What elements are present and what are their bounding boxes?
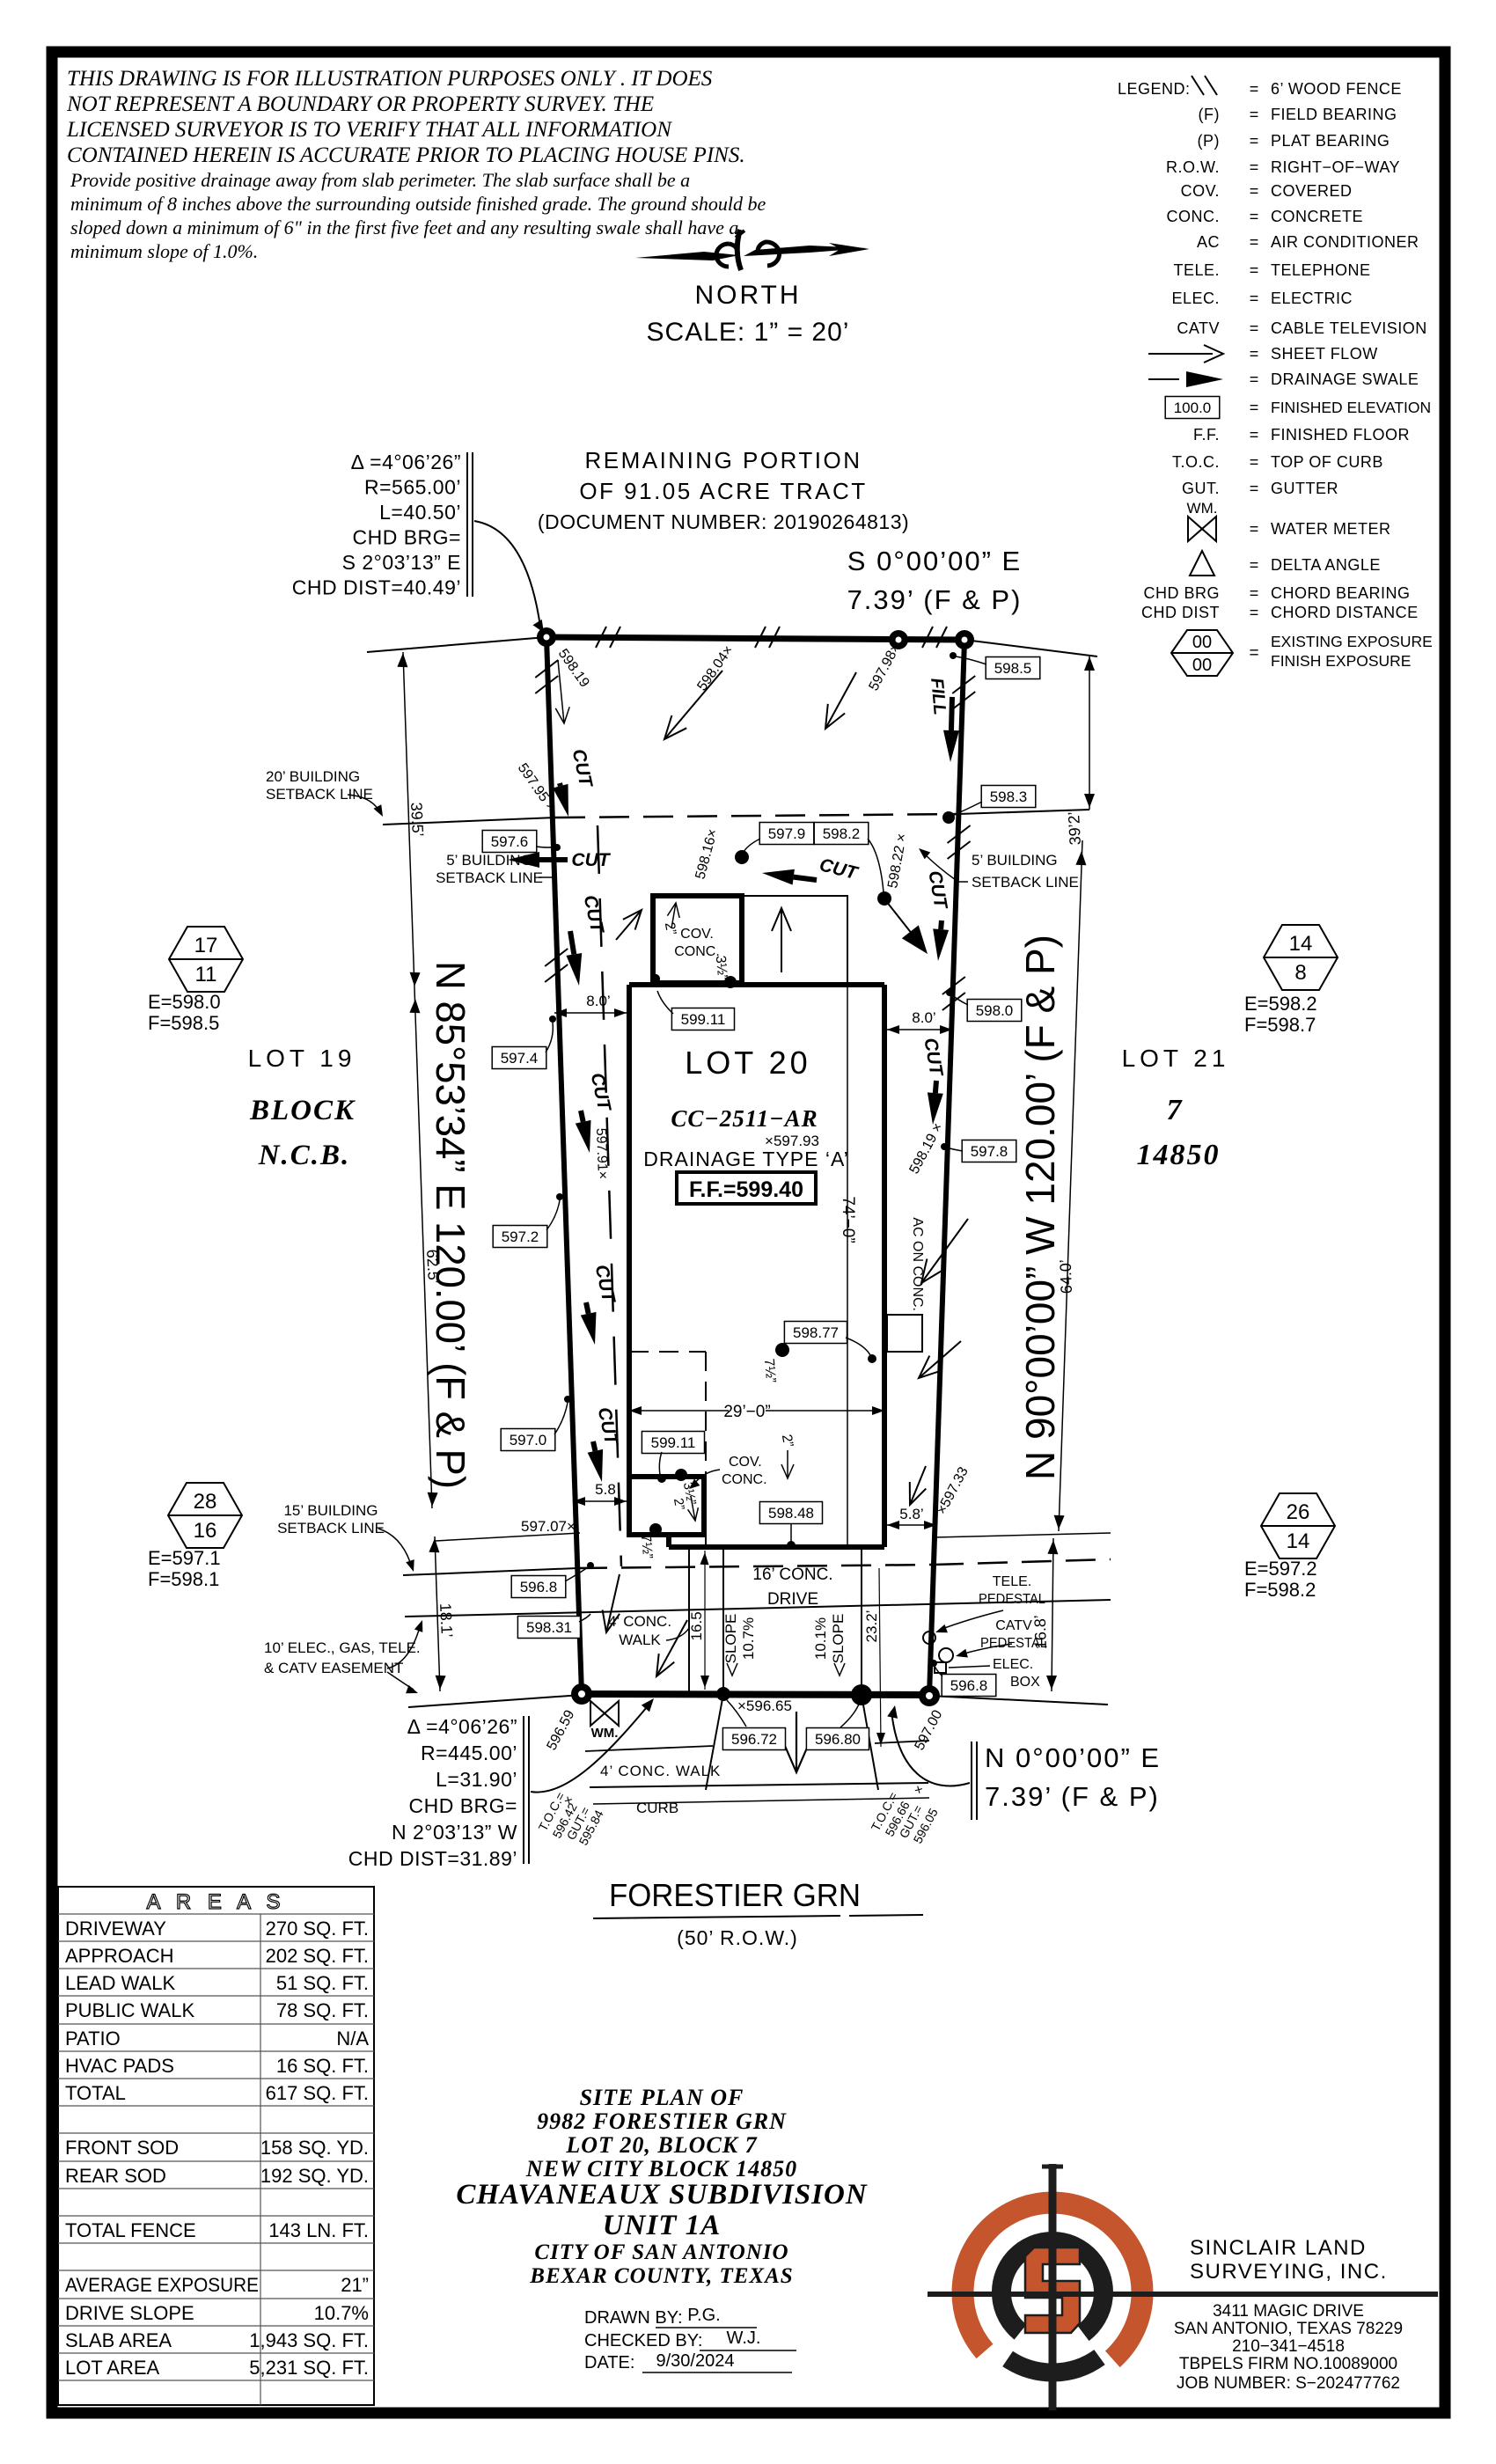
svg-text:WALK: WALK	[619, 1632, 661, 1648]
svg-text:JOB NUMBER: S−202477762: JOB NUMBER: S−202477762	[1177, 2374, 1400, 2393]
svg-text:UNIT 1A: UNIT 1A	[603, 2210, 721, 2241]
svg-text:LEGEND:: LEGEND:	[1118, 80, 1191, 98]
svg-text:598.31: 598.31	[526, 1619, 572, 1636]
svg-text:7: 7	[1167, 1094, 1184, 1126]
svg-text:4’ CONC.: 4’ CONC.	[608, 1613, 671, 1630]
svg-text:W.J.: W.J.	[727, 2328, 761, 2348]
svg-text:F.F.=599.40: F.F.=599.40	[689, 1177, 803, 1202]
svg-text:PATIO: PATIO	[65, 2028, 121, 2050]
svg-text:N 0°00’00” E: N 0°00’00” E	[985, 1742, 1161, 1773]
svg-text:6’ WOOD FENCE: 6’ WOOD FENCE	[1271, 80, 1402, 98]
svg-text:51 SQ. FT.: 51 SQ. FT.	[276, 1972, 369, 1994]
svg-text:BLOCK: BLOCK	[249, 1095, 356, 1126]
svg-text:(P): (P)	[1198, 132, 1221, 150]
svg-text:Δ =4°06’26”: Δ =4°06’26”	[351, 451, 461, 473]
svg-text:TBPELS FIRM NO.10089000: TBPELS FIRM NO.10089000	[1179, 2355, 1397, 2373]
svg-text:16.5’: 16.5’	[688, 1609, 705, 1641]
svg-text:AVERAGE EXPOSURE: AVERAGE EXPOSURE	[65, 2274, 259, 2296]
svg-text:26: 26	[1287, 1500, 1310, 1524]
svg-text:E=598.0: E=598.0	[148, 991, 221, 1013]
svg-text:=: =	[1250, 520, 1259, 538]
svg-text:THIS DRAWING IS FOR ILLUSTRATI: THIS DRAWING IS FOR ILLUSTRATION PURPOSE…	[67, 67, 713, 91]
svg-text:CURB: CURB	[636, 1800, 678, 1816]
svg-text:N/A: N/A	[336, 2028, 369, 2050]
svg-text:A R E A S: A R E A S	[146, 1890, 285, 1914]
svg-text:CHECKED BY:: CHECKED BY:	[584, 2331, 702, 2350]
svg-text:WATER METER: WATER METER	[1271, 520, 1391, 538]
svg-text:N 90°00’00” W 120.00’ (F & P): N 90°00’00” W 120.00’ (F & P)	[1017, 935, 1063, 1480]
svg-text:CHD BRG: CHD BRG	[1143, 584, 1220, 602]
svg-text:AC: AC	[1197, 233, 1220, 251]
svg-text:R=445.00’: R=445.00’	[421, 1742, 517, 1764]
svg-text:DRIVE: DRIVE	[767, 1590, 818, 1609]
svg-text:=: =	[1250, 80, 1259, 98]
svg-text:COV.: COV.	[729, 1455, 762, 1470]
svg-text:=: =	[1250, 319, 1259, 337]
svg-text:S 2°03’13” E: S 2°03’13” E	[342, 551, 461, 574]
svg-text:E=597.1: E=597.1	[148, 1547, 221, 1569]
svg-text:=: =	[1250, 158, 1259, 176]
svg-text:11: 11	[195, 963, 217, 986]
svg-text:COV.: COV.	[1181, 182, 1220, 200]
svg-text:=: =	[1250, 345, 1259, 363]
svg-text:CHORD BEARING: CHORD BEARING	[1271, 584, 1411, 602]
svg-text:DRIVEWAY: DRIVEWAY	[65, 1918, 166, 1940]
svg-text:15’ BUILDING: 15’ BUILDING	[283, 1502, 378, 1519]
svg-text:F=598.1: F=598.1	[148, 1568, 219, 1590]
svg-text:COV.: COV.	[680, 927, 714, 942]
svg-text:3½”: 3½”	[713, 955, 730, 980]
svg-text:(DOCUMENT NUMBER: 20190264813: (DOCUMENT NUMBER: 20190264813)	[538, 510, 909, 533]
svg-text:PEDESTAL: PEDESTAL	[979, 1592, 1045, 1607]
svg-text:LOT 20, BLOCK 7: LOT 20, BLOCK 7	[565, 2132, 757, 2158]
svg-text:REMAINING PORTION: REMAINING PORTION	[584, 447, 862, 473]
svg-text:23.2’: 23.2’	[863, 1610, 880, 1643]
svg-text:5.8: 5.8	[595, 1481, 616, 1498]
svg-text:DRIVE SLOPE: DRIVE SLOPE	[65, 2302, 194, 2324]
svg-text:LICENSED SURVEYOR IS TO VERIFY: LICENSED SURVEYOR IS TO VERIFY THAT ALL …	[66, 118, 672, 142]
svg-text:TELE.: TELE.	[1173, 261, 1220, 279]
svg-text:7½”: 7½”	[761, 1358, 778, 1383]
svg-text:16’ CONC.: 16’ CONC.	[752, 1566, 832, 1584]
svg-text:SETBACK LINE: SETBACK LINE	[277, 1520, 385, 1536]
svg-text:=: =	[1250, 584, 1259, 602]
svg-text:TELE.: TELE.	[993, 1574, 1031, 1589]
svg-text:HVAC PADS: HVAC PADS	[65, 2055, 174, 2077]
svg-text:TOP OF CURB: TOP OF CURB	[1271, 453, 1383, 471]
svg-text:DRAINAGE TYPE ‘A’: DRAINAGE TYPE ‘A’	[643, 1148, 848, 1170]
svg-text:62.5’: 62.5’	[423, 1249, 443, 1284]
svg-text:=: =	[1250, 182, 1259, 200]
svg-text:158 SQ. YD.: 158 SQ. YD.	[260, 2137, 369, 2159]
svg-text:597.2: 597.2	[502, 1228, 539, 1245]
svg-text:SCALE: 1” = 20’: SCALE: 1” = 20’	[647, 318, 850, 347]
svg-text:=: =	[1250, 399, 1259, 416]
svg-text:597.6: 597.6	[491, 833, 529, 850]
svg-text:Provide positive drainage away: Provide positive drainage away from slab…	[70, 169, 690, 191]
svg-text:E=598.2: E=598.2	[1244, 993, 1317, 1015]
svg-text:202 SQ. FT.: 202 SQ. FT.	[266, 1945, 369, 1967]
svg-text:597.07×: 597.07×	[521, 1518, 576, 1535]
svg-text:REAR SOD: REAR SOD	[65, 2165, 166, 2187]
svg-text:R.O.W.: R.O.W.	[1166, 158, 1220, 176]
svg-text:PEDESTAL: PEDESTAL	[980, 1636, 1047, 1651]
svg-text:100.0: 100.0	[1174, 400, 1212, 416]
svg-text:=: =	[1250, 370, 1259, 388]
svg-text:DATE:: DATE:	[584, 2353, 634, 2372]
svg-text:598.77: 598.77	[793, 1324, 839, 1341]
svg-text:N 85°53’34” E 120.00’ (F & P): N 85°53’34” E 120.00’ (F & P)	[428, 961, 473, 1489]
svg-text:PUBLIC WALK: PUBLIC WALK	[65, 1999, 194, 2021]
svg-text:FIELD BEARING: FIELD BEARING	[1271, 106, 1397, 123]
svg-text:N.C.B.: N.C.B.	[258, 1140, 351, 1171]
svg-text:FRONT SOD: FRONT SOD	[65, 2137, 179, 2159]
svg-text:WM.: WM.	[1187, 500, 1218, 517]
svg-text:OF 91.05 ACRE TRACT: OF 91.05 ACRE TRACT	[579, 478, 867, 504]
svg-text:SETBACK LINE: SETBACK LINE	[266, 786, 373, 803]
svg-text:GUTTER: GUTTER	[1271, 480, 1338, 497]
svg-text:SAN ANTONIO, TEXAS 78229: SAN ANTONIO, TEXAS 78229	[1174, 2320, 1403, 2338]
svg-text:CHD DIST=40.49’: CHD DIST=40.49’	[292, 576, 461, 599]
svg-text:=: =	[1250, 480, 1259, 497]
svg-text:10’ ELEC., GAS, TELE.: 10’ ELEC., GAS, TELE.	[264, 1639, 421, 1656]
svg-text:10.1%: 10.1%	[812, 1617, 829, 1660]
svg-text:LOT 20: LOT 20	[685, 1045, 810, 1081]
svg-text:N 2°03’13” W: N 2°03’13” W	[392, 1821, 517, 1844]
svg-text:599.11: 599.11	[681, 1011, 726, 1028]
svg-text:CHAVANEAUX SUBDIVISION: CHAVANEAUX SUBDIVISION	[456, 2179, 868, 2211]
svg-text:28: 28	[194, 1490, 217, 1514]
svg-text:SURVEYING, INC.: SURVEYING, INC.	[1190, 2260, 1388, 2284]
svg-text:8: 8	[1294, 961, 1306, 985]
svg-text:29’−0”: 29’−0”	[723, 1403, 770, 1421]
svg-text:BEXAR COUNTY, TEXAS: BEXAR COUNTY, TEXAS	[529, 2264, 793, 2288]
svg-text:PLAT BEARING: PLAT BEARING	[1271, 132, 1390, 150]
svg-text:1,943 SQ. FT.: 1,943 SQ. FT.	[249, 2329, 369, 2351]
svg-text:5.8’: 5.8’	[899, 1506, 923, 1522]
svg-text:minimum of 8 inches above the: minimum of 8 inches above the surroundin…	[70, 193, 766, 215]
svg-text:R=565.00’: R=565.00’	[364, 476, 461, 499]
svg-text:TOTAL FENCE: TOTAL FENCE	[65, 2219, 196, 2241]
svg-text:FILL: FILL	[927, 677, 950, 715]
svg-text:14: 14	[1289, 932, 1313, 956]
svg-text:CONTAINED HEREIN IS ACCURATE P: CONTAINED HEREIN IS ACCURATE PRIOR TO PL…	[67, 143, 745, 167]
svg-text:39.5’: 39.5’	[407, 802, 427, 837]
svg-text:597.91×: 597.91×	[593, 1128, 610, 1180]
svg-text:597.9: 597.9	[768, 825, 806, 842]
svg-text:SETBACK LINE: SETBACK LINE	[436, 869, 543, 886]
svg-text:14: 14	[1287, 1529, 1310, 1553]
svg-text:SETBACK LINE: SETBACK LINE	[972, 874, 1079, 891]
svg-text:CHD BRG=: CHD BRG=	[353, 526, 462, 549]
svg-text:LEAD WALK: LEAD WALK	[65, 1972, 175, 1994]
svg-text:& CATV EASEMENT: & CATV EASEMENT	[264, 1660, 403, 1676]
svg-text:7½”: 7½”	[638, 1534, 655, 1559]
svg-text:598.48: 598.48	[768, 1505, 814, 1522]
svg-text:LOT AREA: LOT AREA	[65, 2357, 160, 2379]
svg-text:143 LN. FT.: 143 LN. FT.	[268, 2219, 369, 2241]
svg-text:CHD DIST=31.89’: CHD DIST=31.89’	[348, 1847, 517, 1870]
svg-text:sloped down a minimum of 6" in: sloped down a minimum of 6" in the first…	[70, 216, 738, 238]
svg-text:596.8: 596.8	[520, 1579, 558, 1595]
svg-text:2”: 2”	[779, 1434, 796, 1448]
svg-text:L=31.90’: L=31.90’	[436, 1768, 517, 1791]
svg-text:=: =	[1250, 132, 1259, 150]
svg-text:596.8: 596.8	[950, 1677, 988, 1694]
svg-text:NEW CITY BLOCK 14850: NEW CITY BLOCK 14850	[525, 2156, 797, 2182]
svg-text:TOTAL: TOTAL	[65, 2082, 126, 2104]
svg-text:7.39’ (F & P): 7.39’ (F & P)	[985, 1781, 1160, 1812]
svg-text:18.1’: 18.1’	[436, 1602, 456, 1638]
svg-text:APPROACH: APPROACH	[65, 1945, 173, 1967]
svg-text:FINISH EXPOSURE: FINISH EXPOSURE	[1271, 652, 1411, 670]
svg-text:16: 16	[194, 1519, 217, 1543]
svg-text:16 SQ. FT.: 16 SQ. FT.	[276, 2055, 369, 2077]
svg-text:=: =	[1250, 604, 1259, 621]
svg-text:598.0: 598.0	[976, 1002, 1014, 1019]
svg-text:=: =	[1250, 208, 1259, 225]
svg-text:78 SQ. FT.: 78 SQ. FT.	[276, 1999, 369, 2021]
svg-text:SLAB AREA: SLAB AREA	[65, 2329, 172, 2351]
svg-text:598.5: 598.5	[994, 660, 1032, 677]
svg-text:599.11: 599.11	[651, 1434, 696, 1451]
svg-text:270 SQ. FT.: 270 SQ. FT.	[266, 1918, 369, 1940]
svg-text:RIGHT−OF−WAY: RIGHT−OF−WAY	[1271, 158, 1400, 176]
svg-text:39’2’: 39’2’	[1065, 811, 1084, 846]
svg-text:=: =	[1250, 261, 1259, 279]
svg-text:DELTA ANGLE: DELTA ANGLE	[1271, 556, 1381, 574]
svg-text:×596.65: ×596.65	[737, 1698, 792, 1714]
svg-text:74’−0”: 74’−0”	[839, 1196, 857, 1243]
svg-text:LOT 19: LOT 19	[248, 1045, 356, 1072]
svg-text:SLOPE: SLOPE	[830, 1614, 847, 1664]
svg-text:CITY OF SAN ANTONIO: CITY OF SAN ANTONIO	[534, 2240, 788, 2264]
svg-text:3411 MAGIC DRIVE: 3411 MAGIC DRIVE	[1213, 2302, 1364, 2321]
svg-text:CATV: CATV	[1177, 319, 1220, 337]
svg-text:CHD BRG=: CHD BRG=	[409, 1794, 518, 1817]
svg-text:7.39’ (F & P): 7.39’ (F & P)	[847, 584, 1023, 615]
svg-text:596.72: 596.72	[731, 1731, 777, 1748]
svg-text:SITE PLAN OF: SITE PLAN OF	[580, 2085, 744, 2110]
svg-text:CHD DIST: CHD DIST	[1141, 604, 1220, 621]
svg-text:L=40.50’: L=40.50’	[379, 501, 461, 524]
svg-text:SHEET FLOW: SHEET FLOW	[1271, 345, 1378, 363]
svg-text:FINISHED FLOOR: FINISHED FLOOR	[1271, 426, 1410, 444]
svg-text:CONCRETE: CONCRETE	[1271, 208, 1363, 225]
svg-text:ELEC.: ELEC.	[993, 1657, 1033, 1672]
svg-text:CONC.: CONC.	[722, 1472, 767, 1487]
svg-text:5’ BUILDING: 5’ BUILDING	[972, 852, 1058, 869]
svg-text:CHORD DISTANCE: CHORD DISTANCE	[1271, 604, 1419, 621]
svg-text:21”: 21”	[341, 2274, 369, 2296]
svg-text:F=598.5: F=598.5	[148, 1012, 219, 1034]
svg-text:EXISTING EXPOSURE: EXISTING EXPOSURE	[1271, 633, 1433, 650]
svg-text:DRAINAGE SWALE: DRAINAGE SWALE	[1271, 370, 1419, 388]
svg-text:2”: 2”	[662, 921, 678, 936]
svg-text:CUT: CUT	[571, 850, 611, 870]
svg-text:617 SQ. FT.: 617 SQ. FT.	[266, 2082, 369, 2104]
svg-text:597.8: 597.8	[971, 1143, 1008, 1160]
svg-text:8.0’: 8.0’	[586, 993, 610, 1009]
svg-text:S 0°00’00” E: S 0°00’00” E	[847, 546, 1022, 576]
svg-text:E=597.2: E=597.2	[1244, 1558, 1317, 1580]
svg-text:FINISHED ELEVATION: FINISHED ELEVATION	[1271, 399, 1431, 416]
svg-text:CATV: CATV	[995, 1618, 1032, 1633]
svg-text:(F): (F)	[1199, 106, 1220, 123]
svg-text:598.3: 598.3	[990, 788, 1028, 805]
svg-text:BOX: BOX	[1010, 1675, 1040, 1690]
svg-text:SLOPE: SLOPE	[722, 1614, 739, 1664]
svg-text:5,231 SQ. FT.: 5,231 SQ. FT.	[249, 2357, 369, 2379]
svg-text:4’ CONC. WALK: 4’ CONC. WALK	[600, 1763, 721, 1779]
svg-text:192 SQ. YD.: 192 SQ. YD.	[260, 2165, 369, 2187]
svg-text:F=598.7: F=598.7	[1244, 1014, 1316, 1036]
svg-text:=: =	[1250, 453, 1259, 471]
svg-text:minimum slope of 1.0%.: minimum slope of 1.0%.	[70, 240, 258, 262]
svg-text:CONC.: CONC.	[1167, 208, 1221, 225]
svg-text:00: 00	[1192, 633, 1212, 652]
svg-text:(50’ R.O.W.): (50’ R.O.W.)	[677, 1926, 798, 1949]
svg-text:=: =	[1250, 556, 1259, 574]
svg-text:14850: 14850	[1137, 1139, 1221, 1171]
svg-text:P.G.: P.G.	[687, 2306, 720, 2325]
svg-text:TELEPHONE: TELEPHONE	[1271, 261, 1371, 279]
svg-text:CABLE TELEVISION: CABLE TELEVISION	[1271, 319, 1427, 337]
svg-text:FORESTIER GRN: FORESTIER GRN	[609, 1877, 861, 1913]
svg-text:17: 17	[194, 934, 218, 957]
svg-text:DRAWN BY:: DRAWN BY:	[584, 2308, 683, 2328]
svg-text:00: 00	[1192, 656, 1212, 675]
svg-text:ELECTRIC: ELECTRIC	[1271, 290, 1353, 307]
svg-text:GUT.: GUT.	[1182, 480, 1220, 497]
svg-text:F=598.2: F=598.2	[1244, 1579, 1316, 1601]
svg-text:=: =	[1250, 106, 1259, 123]
svg-text:COVERED: COVERED	[1271, 182, 1353, 200]
svg-text:AIR CONDITIONER: AIR CONDITIONER	[1271, 233, 1419, 251]
svg-text:20’ BUILDING: 20’ BUILDING	[266, 768, 360, 785]
svg-text:Δ =4°06’26”: Δ =4°06’26”	[407, 1715, 517, 1738]
svg-text:597.0: 597.0	[510, 1432, 547, 1448]
svg-text:=: =	[1249, 644, 1258, 663]
svg-text:CC−2511−AR: CC−2511−AR	[671, 1105, 818, 1132]
svg-text:10.7%: 10.7%	[740, 1617, 757, 1660]
svg-text:WM.: WM.	[591, 1726, 619, 1741]
svg-text:ELEC.: ELEC.	[1171, 290, 1220, 307]
svg-text:SINCLAIR LAND: SINCLAIR LAND	[1190, 2236, 1367, 2260]
svg-text:LOT 21: LOT 21	[1122, 1045, 1230, 1072]
svg-text:64.0’: 64.0’	[1057, 1259, 1075, 1294]
svg-text:=: =	[1250, 290, 1259, 307]
svg-text:596.80: 596.80	[815, 1731, 861, 1748]
svg-text:=: =	[1250, 426, 1259, 444]
svg-text:F.F.: F.F.	[1193, 426, 1220, 444]
svg-text:598.2: 598.2	[823, 825, 861, 842]
svg-text:9982 FORESTIER GRN: 9982 FORESTIER GRN	[537, 2108, 787, 2134]
svg-text:597.4: 597.4	[501, 1050, 539, 1067]
svg-text:210−341−4518: 210−341−4518	[1232, 2337, 1345, 2356]
svg-text:10.7%: 10.7%	[314, 2302, 369, 2324]
svg-text:=: =	[1250, 233, 1259, 251]
svg-text:9/30/2024: 9/30/2024	[656, 2351, 735, 2371]
svg-text:8.0’: 8.0’	[912, 1009, 935, 1026]
svg-text:NOT REPRESENT A BOUNDARY OR PR: NOT REPRESENT A BOUNDARY OR PROPERTY SUR…	[66, 92, 654, 116]
svg-text:NORTH: NORTH	[694, 281, 801, 310]
svg-text:AC ON CONC.: AC ON CONC.	[910, 1217, 925, 1311]
svg-text:T.O.C.: T.O.C.	[1172, 453, 1220, 471]
